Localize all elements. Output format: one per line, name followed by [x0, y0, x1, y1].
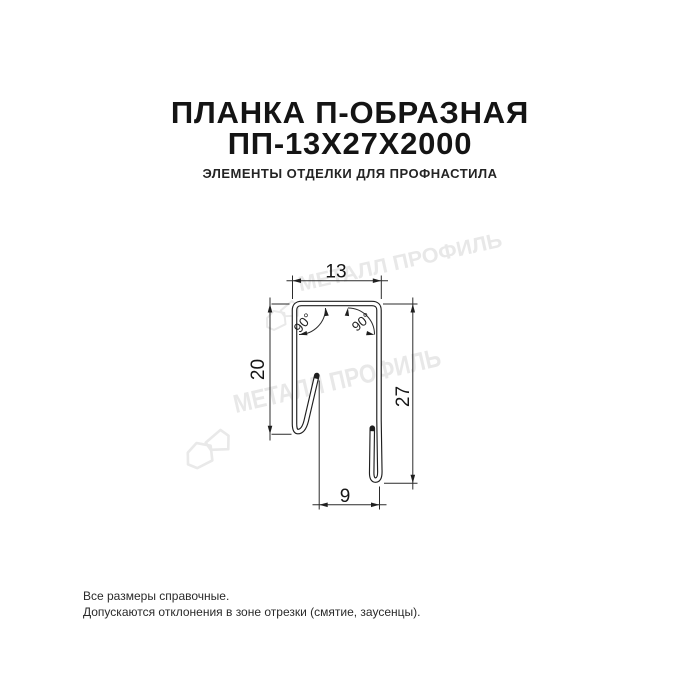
- dim-arrow: [268, 304, 273, 313]
- dimension-bottom-width: 9: [313, 381, 387, 510]
- dim-arrow: [319, 503, 328, 508]
- dimension-right-height: 27: [383, 298, 418, 490]
- dim-arrow: [268, 426, 273, 435]
- angle-annotation-right: 90°: [345, 308, 375, 337]
- page: { "header": { "title_line1": "ПЛАНКА П-О…: [0, 0, 700, 700]
- angle-label-right: 90°: [349, 310, 374, 335]
- dim-arrow: [411, 475, 416, 484]
- dim-label-left: 20: [248, 359, 269, 380]
- metall-profil-logo-icon: [182, 428, 234, 469]
- dim-arrow: [371, 503, 380, 508]
- dim-arrow: [411, 304, 416, 313]
- dim-label-right: 27: [393, 386, 414, 407]
- dim-label-top: 13: [325, 262, 346, 283]
- footer-note-line2: Допускаются отклонения в зоне отрезки (с…: [83, 605, 420, 621]
- footer-note-line1: Все размеры справочные.: [83, 589, 420, 605]
- arc-arrow: [345, 308, 350, 316]
- arc-arrow: [366, 331, 375, 337]
- dim-label-bottom: 9: [340, 486, 351, 507]
- footer-notes: Все размеры справочные. Допускаются откл…: [83, 589, 420, 620]
